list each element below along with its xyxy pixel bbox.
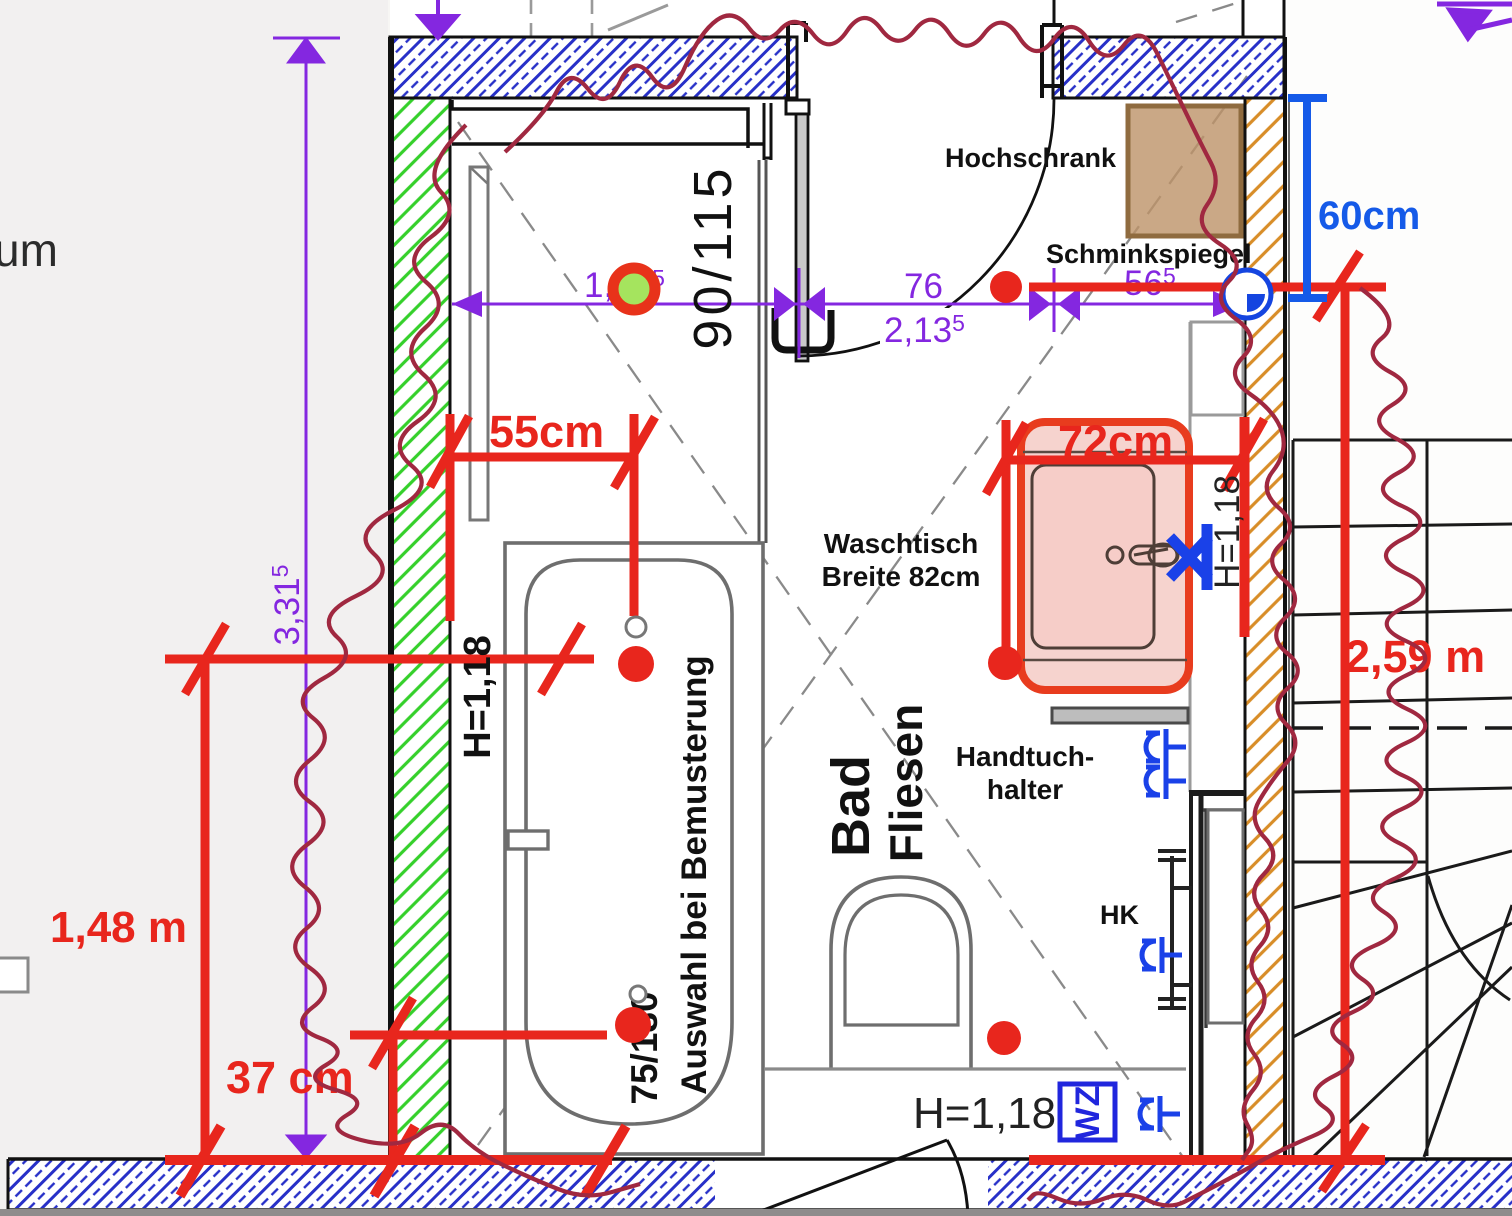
svg-text:Breite 82cm: Breite 82cm xyxy=(822,561,981,592)
svg-text:WZ: WZ xyxy=(1069,1085,1107,1140)
svg-text:H=1,18: H=1,18 xyxy=(1208,475,1247,589)
svg-text:Handtuch-: Handtuch- xyxy=(956,741,1094,772)
svg-text:HK: HK xyxy=(1100,900,1139,930)
svg-text:90/115: 90/115 xyxy=(683,164,743,349)
svg-text:76: 76 xyxy=(904,267,943,306)
svg-text:Bad: Bad xyxy=(821,755,881,857)
svg-text:Waschtisch: Waschtisch xyxy=(824,528,979,559)
svg-text:72cm: 72cm xyxy=(1058,416,1173,467)
svg-text:2,59 m: 2,59 m xyxy=(1345,631,1485,682)
svg-text:Hochschrank: Hochschrank xyxy=(945,143,1117,173)
svg-text:1,48 m: 1,48 m xyxy=(50,903,187,952)
svg-text:Fliesen: Fliesen xyxy=(880,704,932,863)
svg-text:55cm: 55cm xyxy=(489,406,604,457)
svg-text:H=1,18: H=1,18 xyxy=(913,1089,1056,1138)
svg-text:60cm: 60cm xyxy=(1318,194,1420,238)
svg-text:halter: halter xyxy=(987,774,1063,805)
svg-text:um: um xyxy=(0,224,58,276)
svg-text:Auswahl bei Bemusterung: Auswahl bei Bemusterung xyxy=(675,655,714,1095)
svg-text:H=1,18: H=1,18 xyxy=(457,635,499,759)
